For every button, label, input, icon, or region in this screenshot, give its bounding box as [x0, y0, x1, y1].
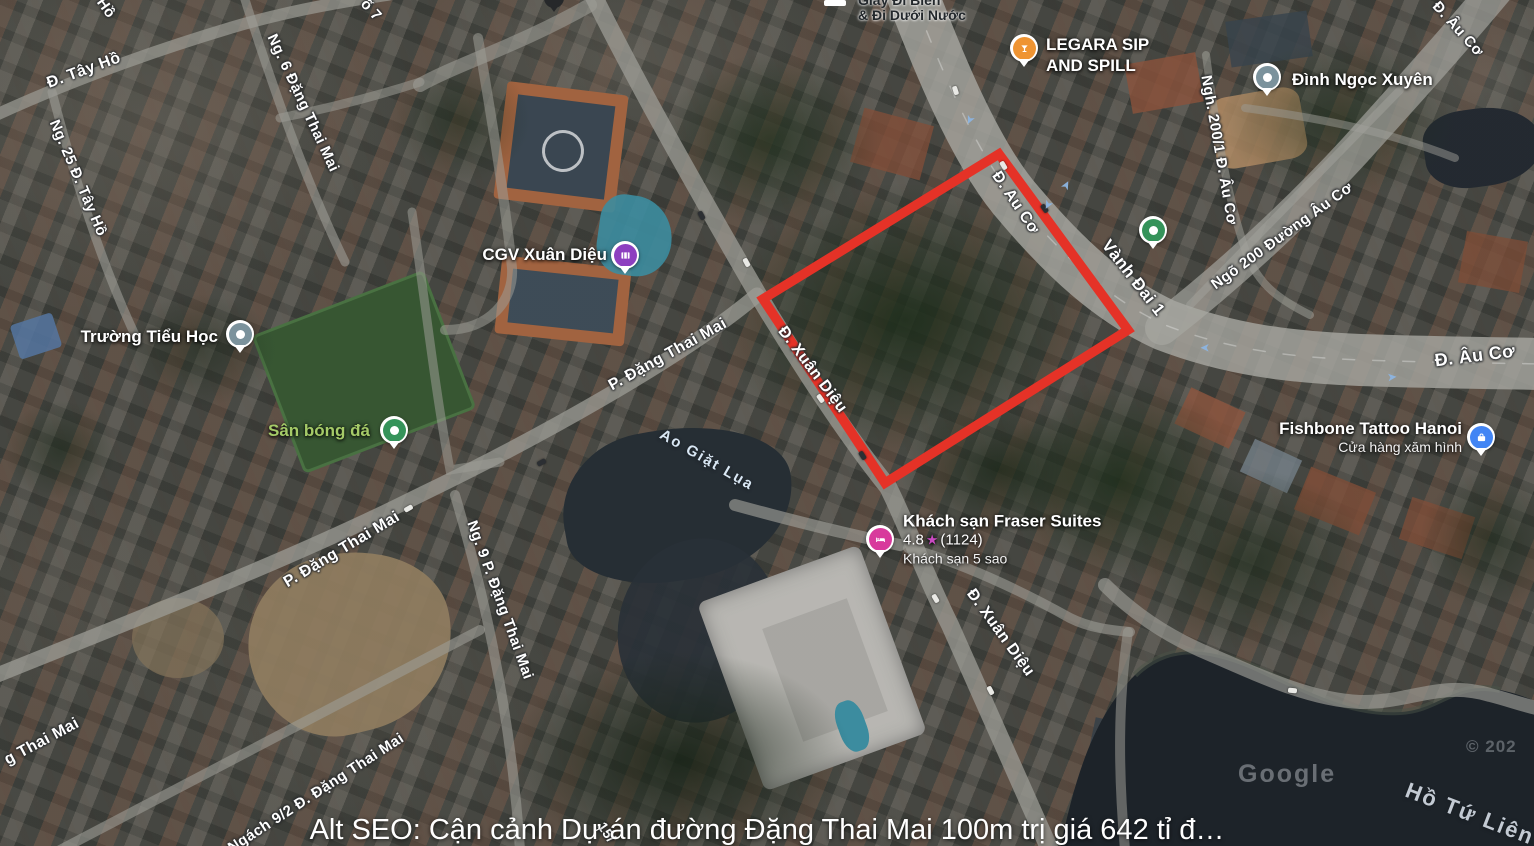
lane-arrow-icon: ➤ [1058, 178, 1073, 193]
road-label-ng25-tay-ho: Ng. 25 Đ. Tây Hồ [46, 117, 110, 238]
blue-tarp-roof [10, 312, 63, 360]
ao-giat-lua-pond-south [603, 525, 795, 735]
roof-a [1174, 387, 1245, 449]
poi-field-label[interactable]: Sân bóng đá [268, 421, 370, 441]
car [1040, 203, 1049, 213]
poi-fishbone-subtitle: Cửa hàng xăm hình [1279, 438, 1462, 457]
road-label-dang-thai-mai-lower: P. Đặng Thai Mai [281, 508, 404, 592]
water-label-ao-giat-lua: Ao Giặt Lụa [657, 426, 757, 494]
copyright-watermark: © 202 [1466, 737, 1517, 757]
road-label-ngh-200-1: Ngh. 200/1 Đ. Âu Cơ [1197, 74, 1240, 226]
poi-green-pin[interactable] [1139, 216, 1167, 244]
car [403, 504, 413, 513]
road-label-xuan-dieu-north: Đ. Xuân Diệu [774, 323, 851, 416]
poi-dinh-pin[interactable] [1253, 63, 1281, 91]
cgv-building [493, 81, 628, 213]
poi-fraser-subtitle: Khách sạn 5 sao [903, 550, 1101, 568]
car [742, 257, 751, 267]
poi-fraser-rating-row: 4.8★(1124) [903, 531, 1101, 550]
poi-legara-pin[interactable] [1010, 34, 1038, 62]
water-label-ho-tu-lien: Hồ Tứ Liên [1402, 777, 1534, 846]
place-dot-icon [383, 419, 406, 442]
poi-fishbone-block[interactable]: Fishbone Tattoo Hanoi Cửa hàng xăm hình [1279, 419, 1462, 457]
lane-arrow-icon: ➤ [1040, 198, 1055, 213]
star-icon: ★ [924, 532, 941, 548]
road-label-au-co-corner: Đ. Âu Cơ [1429, 0, 1487, 60]
football-field [252, 270, 477, 474]
road-label-ng6-dang-thai-mai: Ng. 6 Đặng Thai Mai [264, 31, 343, 174]
car [1288, 688, 1297, 694]
fraser-building-wing [762, 598, 888, 742]
poi-fishbone-pin[interactable] [1467, 423, 1495, 451]
lane-arrow-icon: ➤ [1200, 342, 1210, 354]
poi-field-pin[interactable] [380, 416, 408, 444]
place-dot-icon [1256, 66, 1279, 89]
poi-legara-label[interactable]: LEGARA SIP AND SPILL [1046, 34, 1149, 76]
movie-icon [614, 244, 637, 267]
poi-cgv-label[interactable]: CGV Xuân Diệu [482, 245, 607, 265]
poi-cgv-pin[interactable] [611, 241, 639, 269]
lane-arrow-icon: ➤ [962, 113, 977, 127]
rating-value: 4.8 [903, 532, 924, 549]
poi-fraser-block[interactable]: Khách sạn Fraser Suites 4.8★(1124) Khách… [903, 513, 1101, 568]
fraser-pool [830, 697, 874, 755]
cgv-building-south [494, 255, 631, 346]
cut-label-box [824, 0, 846, 6]
poi-dinh-label[interactable]: Đình Ngọc Xuyên [1292, 70, 1433, 90]
cgv-building-south-roof [507, 269, 618, 334]
road-label-tay-ho: Đ. Tây Hồ [45, 49, 124, 92]
car [858, 450, 867, 460]
highlighted-project-area [763, 154, 1128, 483]
poi-shoe-shop-label[interactable]: Giày Đi Biển & Đi Dưới Nước [858, 0, 966, 23]
poi-legara-line2: AND SPILL [1046, 55, 1149, 76]
roof-h [1399, 497, 1475, 559]
road-label-au-co-right: Đ. Âu Cơ [1434, 341, 1517, 372]
poi-school-pin[interactable] [226, 320, 254, 348]
dirt-lot [229, 530, 471, 754]
dirt-lot-small [132, 598, 224, 678]
place-dot-icon [1142, 219, 1165, 242]
poi-fraser-pin[interactable] [866, 525, 894, 553]
road-label-xuan-dieu-south: Đ. Xuân Diệu [962, 586, 1037, 680]
road-label-au-co-top: Đ. Au Cơ [987, 168, 1042, 238]
car [697, 210, 706, 220]
fraser-building [697, 545, 927, 792]
road-label-ng9-dang-thai-mai: Ng. 9 P. Đặng Thai Mai [463, 518, 536, 681]
road-label-ngo7-partial: ố 7 [357, 0, 385, 24]
car [931, 593, 940, 603]
satellite-map-canvas[interactable]: ➤ ➤ ➤ ➤ ➤ Đ. Tây Hồ Hồ ố 7 Ng. 25 Đ. Tây… [0, 0, 1534, 846]
swimming-pool [593, 191, 677, 281]
place-dot-icon [229, 323, 252, 346]
poi-shoe-shop-line2: & Đi Dưới Nước [858, 8, 966, 23]
black-pin-cut[interactable] [544, 0, 564, 8]
roof-g [850, 108, 934, 181]
car [952, 85, 960, 95]
poi-school-label[interactable]: Trường Tiểu Học [81, 327, 218, 347]
review-count: (1124) [940, 532, 982, 549]
roof-i [1086, 717, 1164, 779]
pond-top-right [1419, 100, 1534, 194]
roof-f [1458, 231, 1528, 293]
car [986, 685, 995, 695]
car [536, 458, 546, 467]
cgv-building-roof [507, 94, 616, 199]
image-caption: Alt SEO: Cận cảnh Dự án đường Đặng Thai … [310, 814, 1225, 846]
poi-legara-line1: LEGARA SIP [1046, 34, 1149, 55]
cgv-roof-ring [540, 128, 587, 175]
roof-c [1294, 467, 1376, 536]
road-label-thai-mai-partial: g Thai Mai [1, 715, 82, 769]
poi-fraser-name: Khách sạn Fraser Suites [903, 513, 1101, 531]
google-watermark: Google [1238, 760, 1336, 789]
road-label-ho-partial: Hồ [93, 0, 119, 21]
hotel-bed-icon [869, 528, 892, 551]
cocktail-icon [1013, 37, 1036, 60]
road-label-dang-thai-mai-upper: P. Đặng Thai Mai [606, 315, 730, 395]
lake-shore-highlight [1135, 651, 1500, 712]
poi-fishbone-name: Fishbone Tattoo Hanoi [1279, 419, 1462, 438]
shopping-bag-icon [1470, 426, 1493, 449]
lane-arrow-icon: ➤ [1386, 371, 1397, 384]
roof-e [1225, 11, 1313, 68]
